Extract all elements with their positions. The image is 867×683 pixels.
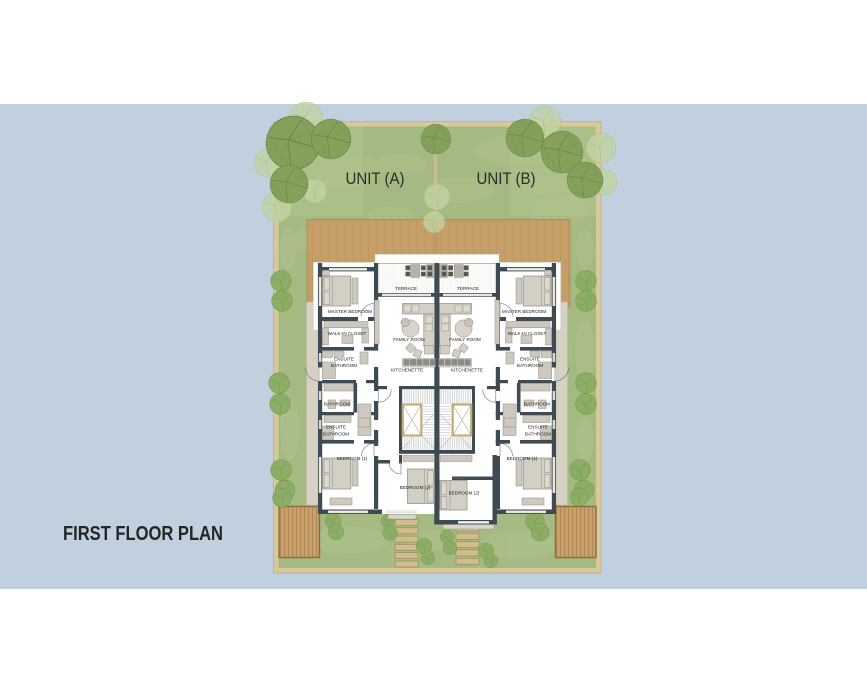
svg-text:WALK-IN CLOSET: WALK-IN CLOSET [328,331,367,336]
svg-text:MASTER BEDROOM: MASTER BEDROOM [328,309,372,314]
svg-text:BATHROOM: BATHROOM [323,432,349,437]
svg-text:ENSUITE: ENSUITE [520,357,540,362]
svg-text:TERRACE: TERRACE [457,286,479,291]
svg-text:MASTER BEDROOM: MASTER BEDROOM [502,309,546,314]
svg-text:ENSUITE: ENSUITE [528,425,548,430]
svg-text:WALK-IN CLOSET: WALK-IN CLOSET [508,331,547,336]
svg-text:TERRACE: TERRACE [395,286,417,291]
svg-text:KITCHENETTE: KITCHENETTE [391,368,423,373]
svg-text:UNIT (A): UNIT (A) [346,170,405,188]
svg-text:ENSUITE: ENSUITE [334,357,354,362]
svg-text:BEDROOM (2): BEDROOM (2) [400,485,431,490]
svg-text:FIRST FLOOR PLAN: FIRST FLOOR PLAN [63,523,223,545]
svg-text:BATHROOM: BATHROOM [517,363,543,368]
svg-text:FAMILY ROOM: FAMILY ROOM [393,337,425,342]
svg-text:UNIT (B): UNIT (B) [477,170,536,188]
svg-text:ENSUITE: ENSUITE [326,425,346,430]
svg-text:BATHROOM: BATHROOM [525,432,551,437]
svg-text:BATHROOM: BATHROOM [324,402,350,407]
svg-text:BATHROOM: BATHROOM [524,402,550,407]
svg-text:BEDROOM (1): BEDROOM (1) [337,456,368,461]
svg-text:BEDROOM (1): BEDROOM (1) [507,456,538,461]
svg-text:FAMILY ROOM: FAMILY ROOM [449,337,481,342]
svg-text:BEDROOM (2): BEDROOM (2) [449,491,480,496]
svg-text:BATHROOM: BATHROOM [331,363,357,368]
svg-text:KITCHENETTE: KITCHENETTE [451,368,483,373]
